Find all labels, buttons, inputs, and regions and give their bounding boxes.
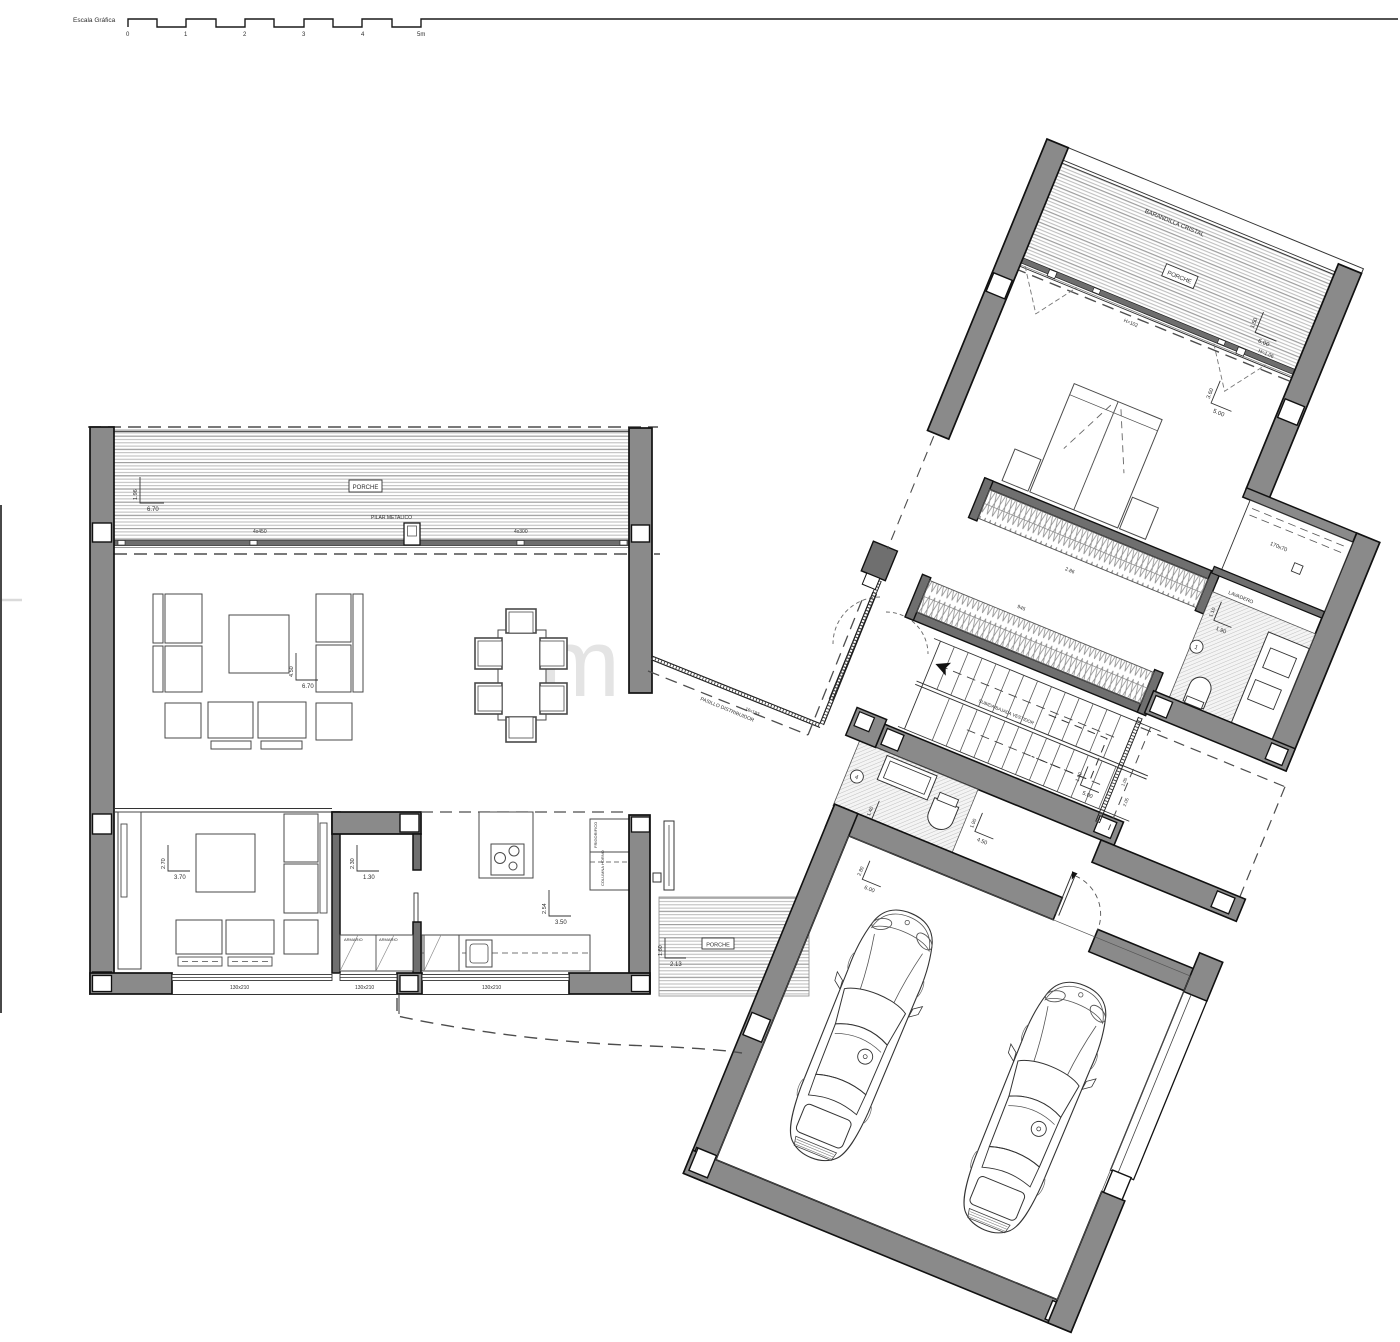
svg-text:130x210: 130x210 [230, 985, 249, 991]
svg-text:1.30: 1.30 [363, 875, 375, 881]
svg-text:2.13: 2.13 [670, 962, 682, 968]
svg-text:ARMARIO: ARMARIO [379, 937, 398, 942]
svg-text:130x210: 130x210 [482, 985, 501, 991]
svg-text:6.70: 6.70 [147, 507, 159, 513]
svg-text:PORCHE: PORCHE [706, 943, 730, 949]
svg-text:3.50: 3.50 [555, 920, 567, 926]
svg-text:1.96: 1.96 [133, 489, 139, 500]
svg-text:PORCHE: PORCHE [353, 485, 379, 491]
svg-text:4.50: 4.50 [289, 666, 295, 677]
svg-text:ARMARIO: ARMARIO [344, 937, 363, 942]
svg-text:PILAR METALICO: PILAR METALICO [371, 515, 412, 521]
svg-text:130x210: 130x210 [355, 985, 374, 991]
svg-text:FRIGORIFICO: FRIGORIFICO [593, 822, 598, 848]
svg-text:2.30: 2.30 [350, 858, 356, 869]
svg-text:2.54: 2.54 [542, 903, 548, 914]
svg-text:3.70: 3.70 [174, 875, 186, 881]
svg-text:2.70: 2.70 [161, 858, 167, 869]
svg-text:5m: 5m [417, 32, 425, 38]
svg-text:COLUMNA HORNO: COLUMNA HORNO [600, 850, 605, 886]
svg-text:4x300: 4x300 [514, 529, 528, 535]
svg-text:Escala Gráfica: Escala Gráfica [73, 17, 116, 24]
svg-text:4x450: 4x450 [253, 529, 267, 535]
svg-text:1.60: 1.60 [658, 945, 664, 956]
svg-text:6.70: 6.70 [302, 684, 314, 690]
